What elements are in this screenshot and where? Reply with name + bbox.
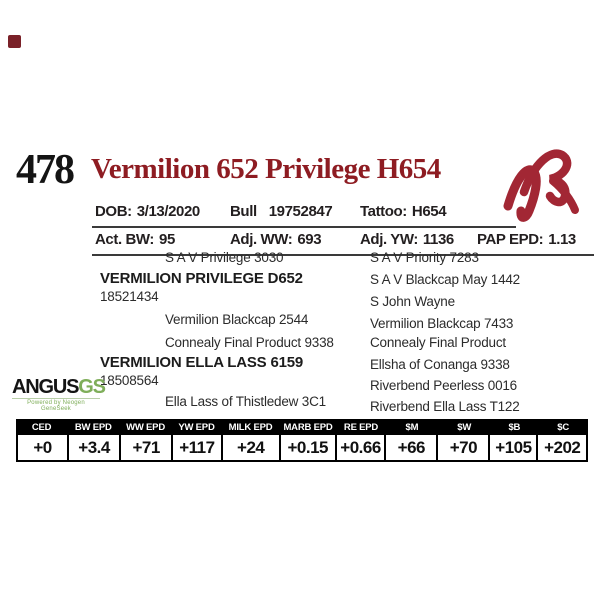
epd-value-milk: +24: [223, 435, 281, 460]
epd-value-dollar-c: +202: [538, 435, 586, 460]
pap-epd-label: PAP EPD:: [477, 231, 543, 248]
epd-header-dollar-c: $C: [538, 422, 588, 433]
epd-header-dollar-b: $B: [490, 422, 538, 433]
pedigree-ancestor: S A V Blackcap May 1442: [370, 272, 520, 287]
pedigree-ancestor: Riverbend Peerless 0016: [370, 378, 517, 393]
pedigree-sire-name: VERMILION PRIVILEGE D652: [100, 270, 303, 287]
lot-number: 478: [16, 146, 73, 194]
epd-table: CED BW EPD WW EPD YW EPD MILK EPD MARB E…: [16, 419, 588, 462]
tattoo-label: Tattoo:: [360, 203, 407, 220]
epd-value-re: +0.66: [337, 435, 387, 460]
epd-value-dollar-m: +66: [386, 435, 438, 460]
epd-header-dollar-w: $W: [438, 422, 490, 433]
epd-table-value-row: +0 +3.4 +71 +117 +24 +0.15 +0.66 +66 +70…: [16, 435, 588, 462]
angus-gs-suffix: GS: [78, 376, 105, 398]
actual-bw-label: Act. BW:: [95, 231, 154, 248]
epd-header-milk: MILK EPD: [221, 422, 280, 433]
actual-bw-field: Act. BW:95: [95, 231, 175, 248]
pedigree-ancestor: Ellsha of Conanga 9338: [370, 357, 510, 372]
angus-logo-tagline: Powered by Neogen GeneSeek: [12, 398, 100, 412]
pedigree-sire-dam: Vermilion Blackcap 2544: [165, 312, 308, 327]
epd-table-header-row: CED BW EPD WW EPD YW EPD MILK EPD MARB E…: [16, 419, 588, 435]
catalog-card: 478 Vermilion 652 Privilege H654 DOB:3/1…: [0, 0, 600, 600]
epd-value-marb: +0.15: [281, 435, 337, 460]
pap-epd-field: PAP EPD:1.13: [477, 231, 576, 248]
adjusted-yw-label: Adj. YW:: [360, 231, 418, 248]
pedigree-ancestor: S John Wayne: [370, 294, 455, 309]
animal-title: Vermilion 652 Privilege H654: [91, 153, 441, 186]
epd-value-yw: +117: [173, 435, 223, 460]
actual-bw-value: 95: [159, 231, 175, 248]
dob-field: DOB:3/13/2020: [95, 203, 200, 220]
dob-label: DOB:: [95, 203, 132, 220]
epd-value-bw: +3.4: [69, 435, 121, 460]
pedigree-ancestor: Connealy Final Product: [370, 335, 506, 350]
tattoo-field: Tattoo:H654: [360, 203, 446, 220]
pedigree-dam-sire: Connealy Final Product 9338: [165, 335, 334, 350]
epd-header-marb: MARB EPD: [280, 422, 336, 433]
tattoo-value: H654: [412, 203, 446, 220]
pedigree-ancestor: Riverbend Ella Lass T122: [370, 399, 520, 414]
adjusted-ww-value: 693: [297, 231, 321, 248]
epd-value-ced: +0: [18, 435, 69, 460]
adjusted-ww-label: Adj. WW:: [230, 231, 292, 248]
epd-header-re: RE EPD: [336, 422, 386, 433]
divider-line-top: [92, 226, 516, 228]
pap-epd-value: 1.13: [548, 231, 576, 248]
epd-header-ww: WW EPD: [119, 422, 171, 433]
pedigree-dam-dam: Ella Lass of Thistledew 3C1: [165, 394, 326, 409]
adjusted-ww-field: Adj. WW:693: [230, 231, 321, 248]
corner-marker-square: [8, 35, 21, 48]
pedigree-sire-reg: 18521434: [100, 289, 158, 304]
pedigree-dam-name: VERMILION ELLA LASS 6159: [100, 354, 303, 371]
bull-label: Bull: [230, 203, 257, 220]
epd-header-dollar-m: $M: [386, 422, 438, 433]
epd-value-ww: +71: [121, 435, 173, 460]
angus-gs-logo: ANGUSGS Powered by Neogen GeneSeek: [12, 377, 112, 412]
epd-header-bw: BW EPD: [67, 422, 119, 433]
adjusted-yw-field: Adj. YW:1136: [360, 231, 454, 248]
vr-brand-icon: [499, 146, 593, 236]
angus-logo-text: ANGUS: [12, 376, 78, 398]
epd-value-dollar-b: +105: [490, 435, 538, 460]
pedigree-sire-sire: S A V Privilege 3030: [165, 250, 283, 265]
epd-value-dollar-w: +70: [438, 435, 490, 460]
pedigree-ancestor: S A V Priority 7283: [370, 250, 479, 265]
adjusted-yw-value: 1136: [423, 231, 454, 248]
dob-value: 3/13/2020: [137, 203, 200, 220]
epd-header-yw: YW EPD: [172, 422, 222, 433]
epd-header-ced: CED: [16, 422, 67, 433]
registration-number: 19752847: [269, 203, 333, 220]
pedigree-ancestor: Vermilion Blackcap 7433: [370, 316, 513, 331]
registration-field: Bull19752847: [230, 203, 332, 220]
